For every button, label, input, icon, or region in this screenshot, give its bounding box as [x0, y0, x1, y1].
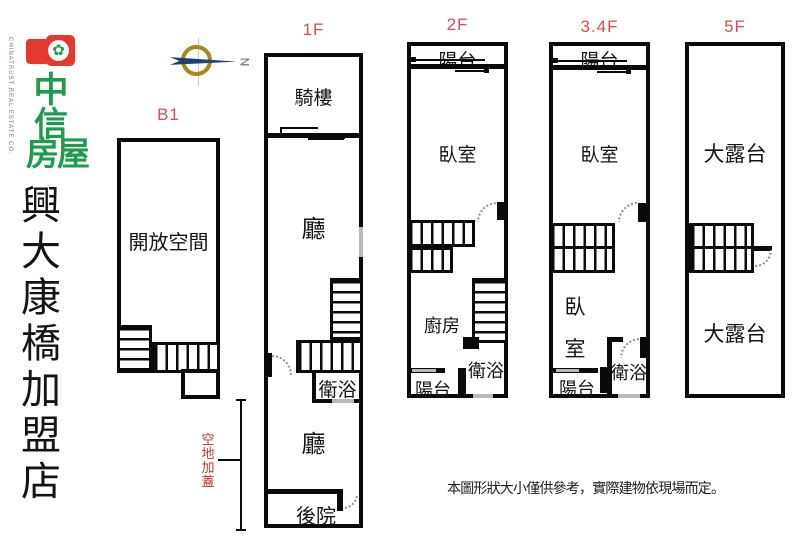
room-label-bath: 衛浴: [608, 359, 650, 385]
compass-north-label: N: [237, 58, 251, 67]
door-jamb: [497, 202, 504, 220]
sliding-door-tick: [280, 127, 282, 135]
stair-landing-divider: [552, 246, 612, 249]
wall: [407, 64, 508, 69]
sliding-door: [308, 138, 344, 140]
room-label-bedroom: 臥室: [411, 140, 504, 167]
b1-annex: [181, 369, 220, 399]
dimension-bracket-tick: [236, 529, 246, 531]
staircase: [296, 340, 363, 373]
floor-plan-flyer: CHINATRUST REAL ESTATE CO. ✿ 中 信 房屋 興大康橋…: [0, 0, 800, 539]
staircase: [549, 223, 615, 273]
staircase: [407, 247, 453, 273]
wall: [463, 337, 479, 349]
room-label-hall-upper: 廳: [268, 209, 359, 244]
staircase: [117, 325, 152, 373]
door-jamb: [600, 367, 607, 393]
window: [473, 394, 493, 398]
staircase: [330, 278, 363, 340]
logo-chars-fangwu: 房屋: [24, 127, 90, 175]
window: [412, 369, 436, 372]
wall: [549, 65, 650, 70]
staircase: [472, 278, 508, 343]
wall: [264, 489, 340, 494]
window: [618, 394, 640, 398]
disclaimer-text: 本圖形狀大小僅供參考，實際建物依現場而定。: [447, 478, 724, 498]
door-jamb: [640, 337, 647, 358]
sliding-door-nub: [484, 68, 489, 73]
logo-knot-circle: ✿: [48, 40, 69, 61]
room-label-hall-lower: 廳: [268, 424, 359, 459]
door-swing-arc: [252, 355, 292, 395]
floor-label-b1: B1: [117, 105, 220, 125]
staircase: [407, 220, 475, 247]
room-label-backyard: 後院: [288, 500, 344, 529]
stair-landing-divider: [692, 246, 751, 249]
sliding-door: [411, 59, 485, 61]
room-label-bedroom-mid: 臥室: [563, 286, 587, 370]
sliding-door: [280, 127, 318, 129]
store-name: 興大康橋加盟店: [17, 183, 65, 505]
dimension-bracket-tick: [236, 399, 246, 401]
room-label-terrace-bottom: 大露台: [689, 318, 781, 348]
staircase: [689, 223, 754, 273]
floor-label-34f: 3.4F: [549, 17, 650, 37]
room-label-terrace-top: 大露台: [689, 138, 781, 168]
floor-plan-34f: 陽台 臥室 臥室 衛浴 陽台: [549, 42, 650, 398]
sliding-door-nub: [340, 134, 345, 139]
window: [359, 227, 363, 257]
logo-knot-icon: ✿: [52, 43, 65, 58]
floor-plan-b1: 開放空間: [117, 138, 220, 373]
floor-plan-1f: 騎樓 廳 衛浴 廳 後院: [264, 53, 363, 528]
annotation-vacant-land: 空地加蓋: [200, 433, 216, 489]
window: [556, 369, 579, 372]
room-label-kitchen: 廚房: [413, 312, 471, 338]
floor-label-2f: 2F: [407, 15, 508, 35]
door-jamb: [458, 368, 466, 398]
dimension-bracket-tick: [218, 459, 240, 461]
floor-plan-2f: 陽台 臥室 廚房 衛浴 陽台: [407, 42, 508, 398]
dimension-bracket-line: [240, 399, 242, 530]
room-label-open-space: 開放空間: [121, 226, 216, 255]
floor-label-5f: 5F: [685, 17, 785, 37]
door-jamb: [638, 203, 646, 222]
sliding-door: [553, 60, 627, 62]
room-label-bedroom-top: 臥室: [553, 140, 646, 167]
room-label-balcony-bottom: 陽台: [553, 375, 601, 401]
door-jamb: [264, 353, 272, 377]
room-label-balcony-bottom: 陽台: [409, 376, 457, 402]
company-name-en: CHINATRUST REAL ESTATE CO.: [7, 37, 13, 165]
room-label-bath: 衛浴: [464, 357, 508, 383]
room-label-arcade: 騎樓: [268, 83, 359, 110]
sliding-door-nub: [626, 69, 631, 74]
floor-label-1f: 1F: [264, 20, 363, 40]
room-label-bath: 衛浴: [312, 375, 363, 402]
floor-plan-5f: 大露台 大露台: [685, 42, 785, 398]
